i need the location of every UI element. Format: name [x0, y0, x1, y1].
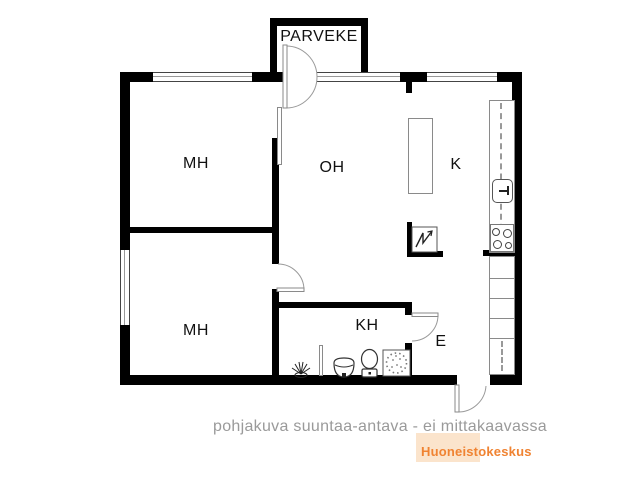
window-icon [153, 72, 252, 82]
floor-plan: PARVEKE MH OH K MH KH E pohjakuva suunta… [0, 0, 640, 480]
closet-divider [490, 278, 514, 279]
wall-interior [272, 233, 279, 264]
stove-burner-icon [493, 240, 502, 249]
room-label-oh: OH [320, 159, 345, 177]
room-label-mh1: MH [183, 155, 209, 173]
room-label-e: E [435, 333, 446, 351]
room-label-kh: KH [355, 317, 378, 335]
shower-place-icon [382, 349, 411, 377]
stove-burner-icon [492, 228, 500, 236]
room-label-mh2: MH [183, 322, 209, 340]
electric-panel-icon [411, 226, 438, 253]
stove-burner-icon [503, 229, 512, 238]
balcony-wall [361, 18, 368, 74]
wall-interior [126, 227, 279, 233]
wall-interior [406, 82, 412, 93]
room-label-parveke: PARVEKE [280, 28, 358, 46]
disclaimer-text: pohjakuva suuntaa-antava - ei mittakaava… [120, 418, 640, 436]
closet-divider [490, 298, 514, 299]
window-icon [427, 72, 497, 82]
balcony-wall [270, 18, 368, 26]
wall-interior [275, 302, 412, 308]
bedroom-door-leaf-icon [277, 107, 282, 165]
wall-left [120, 72, 130, 250]
stove-burner-icon [505, 242, 512, 249]
floor-drain-icon [288, 358, 314, 378]
closet-divider [490, 338, 514, 339]
kitchen-island [408, 118, 433, 194]
room-label-k: K [450, 156, 461, 174]
window-icon [313, 72, 400, 82]
coat-rack-icon [501, 341, 503, 371]
sink-tap-icon [507, 186, 509, 195]
toilet-icon [359, 349, 380, 378]
window-icon [120, 250, 130, 325]
brand-logo: Huoneistokeskus [421, 444, 532, 459]
shower-screen [319, 345, 323, 376]
bedroom-door-icon [276, 261, 309, 294]
entry-door-icon [453, 383, 493, 416]
wall-top [252, 72, 284, 82]
wall-top [400, 72, 427, 82]
balcony-wall [270, 18, 277, 74]
washbasin-icon [332, 356, 356, 378]
closet-divider [490, 318, 514, 319]
wall-bottom [490, 375, 522, 385]
balcony-door-icon [282, 44, 320, 110]
